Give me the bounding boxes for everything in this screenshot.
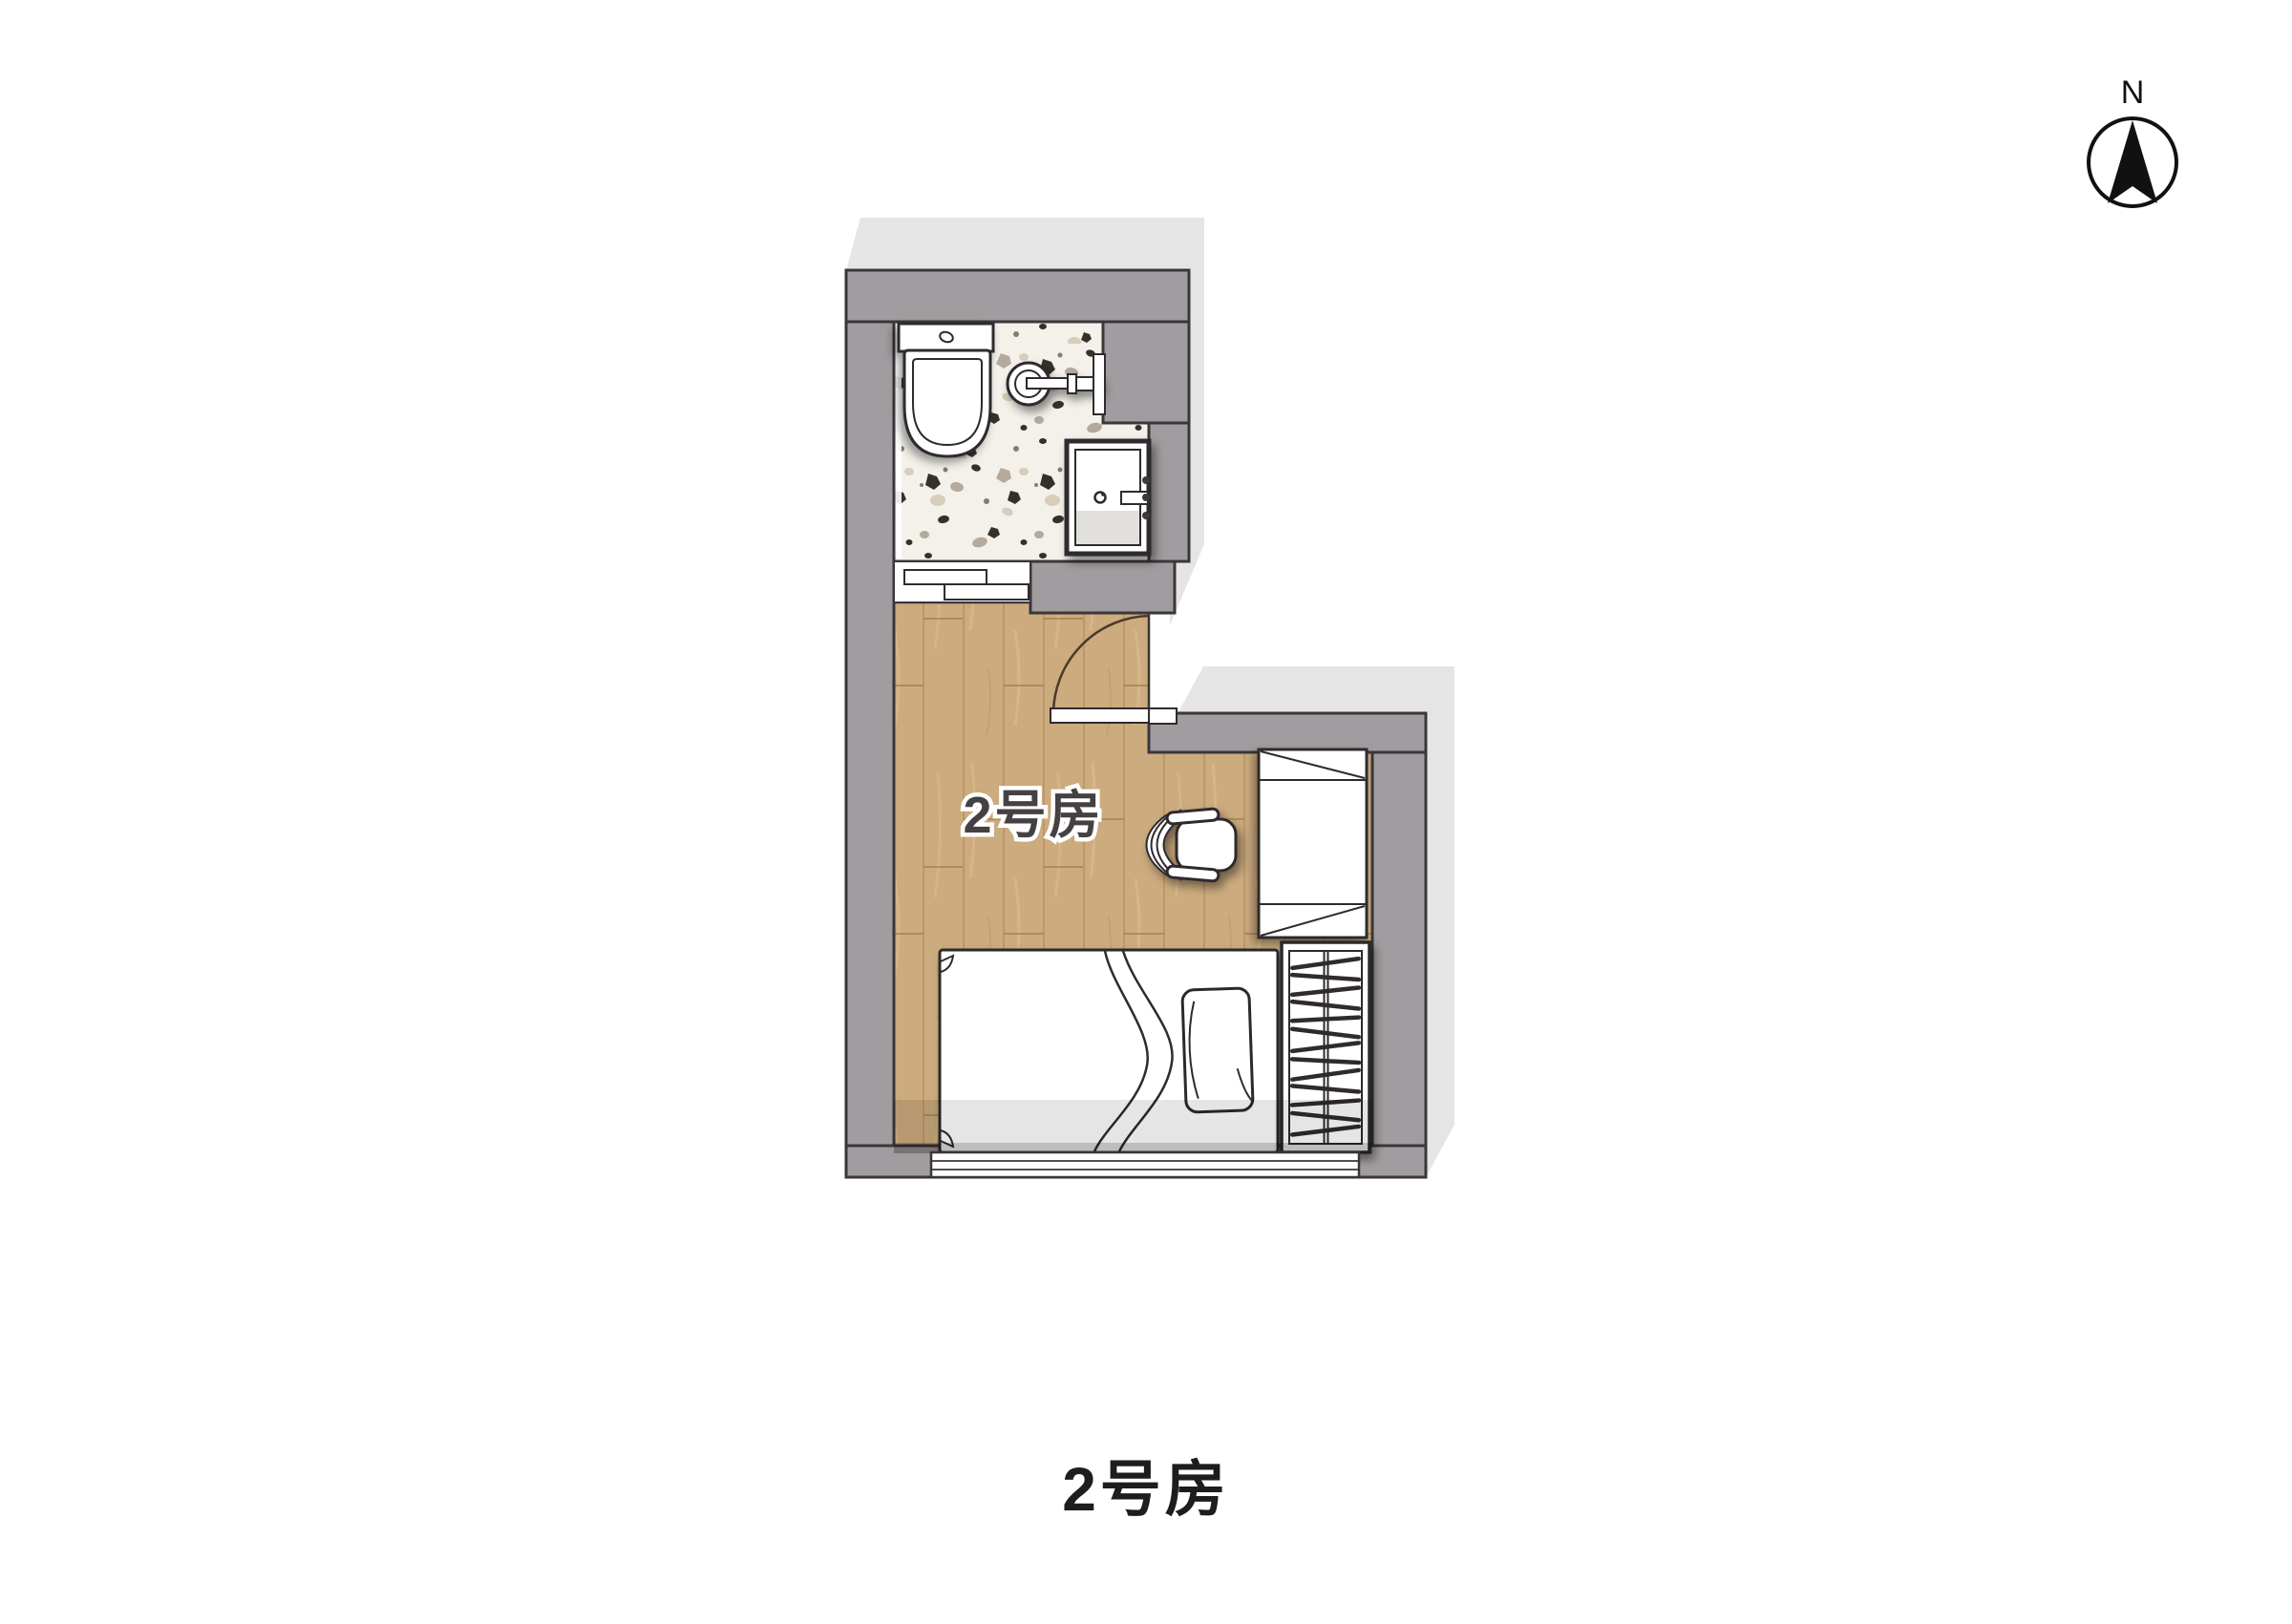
wall-bathroom-bottom — [1030, 561, 1175, 613]
shower-unit-icon — [1067, 441, 1150, 554]
wall-right-upper — [1103, 322, 1189, 423]
wall-top — [846, 270, 1189, 322]
toilet-icon — [899, 324, 993, 456]
floor-plan-drawing: 2号房 2号房 N — [0, 0, 2292, 1624]
wall-right-lower — [1372, 752, 1426, 1146]
floor-plan-page: 2号房 2号房 N — [0, 0, 2292, 1624]
wall-niche — [1093, 354, 1105, 414]
wall-right-mid — [1149, 423, 1189, 561]
plan-caption: 2号房 — [1062, 1455, 1230, 1524]
wall-lower-top — [1149, 713, 1426, 752]
pillow-icon — [1182, 988, 1253, 1112]
compass-north-letter: N — [2121, 74, 2145, 111]
desk — [1259, 749, 1367, 938]
north-compass: N — [2089, 74, 2176, 206]
floor-shadow-band — [894, 1100, 1372, 1143]
sliding-door — [894, 561, 1030, 602]
office-chair-icon — [1150, 809, 1236, 881]
room-label: 2号房 — [963, 787, 1103, 844]
wall-left — [846, 322, 894, 1146]
window — [931, 1152, 1359, 1177]
door-leaf — [1050, 708, 1149, 723]
door-jamb — [1149, 708, 1177, 724]
